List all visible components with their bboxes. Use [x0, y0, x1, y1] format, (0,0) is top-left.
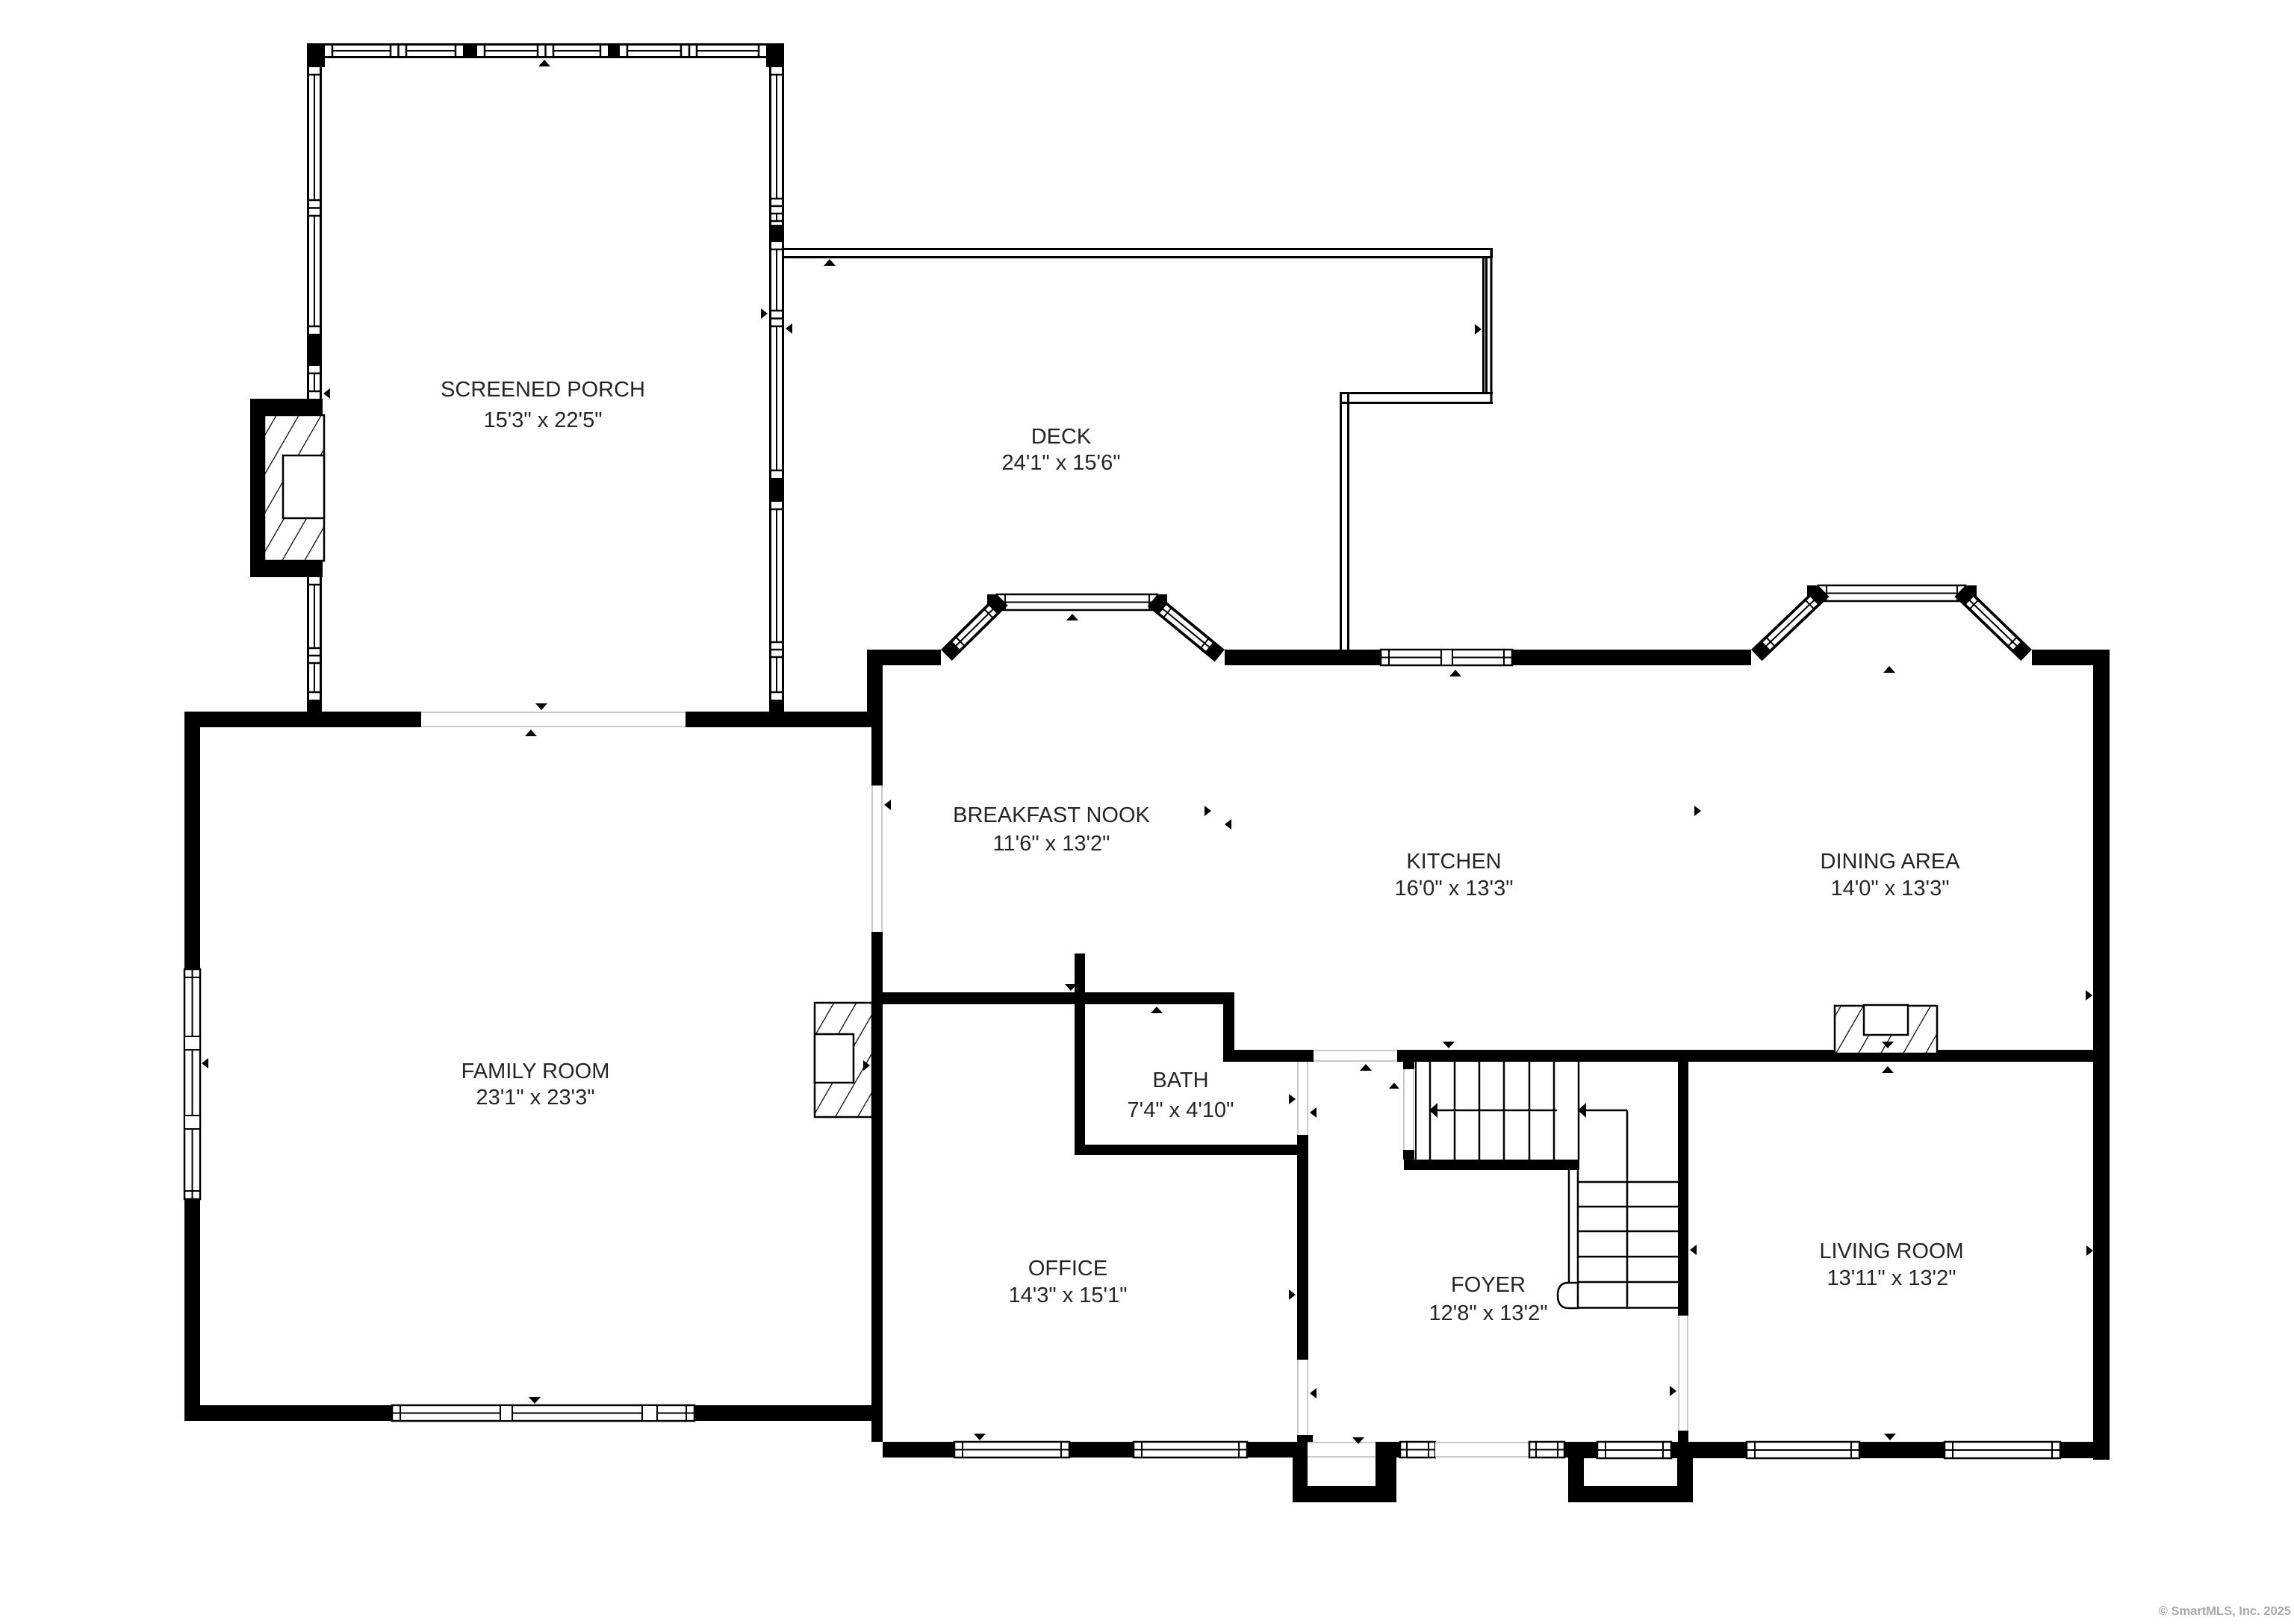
svg-text:FAMILY ROOM: FAMILY ROOM	[461, 1060, 610, 1083]
svg-text:13'11" x 13'2": 13'11" x 13'2"	[1827, 1266, 1956, 1290]
svg-text:© SmartMLS, Inc. 2025: © SmartMLS, Inc. 2025	[2159, 1605, 2291, 1618]
svg-text:11'6" x 13'2": 11'6" x 13'2"	[993, 832, 1110, 856]
svg-text:OFFICE: OFFICE	[1028, 1257, 1107, 1281]
svg-text:SCREENED PORCH: SCREENED PORCH	[441, 378, 645, 402]
svg-text:23'1" x 23'3": 23'1" x 23'3"	[476, 1086, 594, 1110]
svg-text:BREAKFAST NOOK: BREAKFAST NOOK	[953, 803, 1150, 827]
svg-text:12'8" x 13'2": 12'8" x 13'2"	[1429, 1301, 1547, 1325]
svg-text:24'1" x 15'6": 24'1" x 15'6"	[1001, 451, 1120, 475]
svg-text:15'3" x 22'5": 15'3" x 22'5"	[483, 408, 602, 432]
svg-text:KITCHEN: KITCHEN	[1406, 850, 1501, 874]
svg-text:BATH: BATH	[1152, 1068, 1208, 1092]
svg-text:14'0" x 13'3": 14'0" x 13'3"	[1830, 877, 1949, 900]
svg-text:FOYER: FOYER	[1451, 1273, 1526, 1297]
svg-text:7'4" x 4'10": 7'4" x 4'10"	[1128, 1098, 1234, 1122]
svg-text:LIVING ROOM: LIVING ROOM	[1819, 1239, 1963, 1263]
svg-text:DECK: DECK	[1031, 425, 1092, 449]
svg-text:16'0" x 13'3": 16'0" x 13'3"	[1394, 877, 1513, 900]
svg-text:14'3" x 15'1": 14'3" x 15'1"	[1008, 1284, 1127, 1307]
svg-text:DINING AREA: DINING AREA	[1821, 850, 1961, 874]
